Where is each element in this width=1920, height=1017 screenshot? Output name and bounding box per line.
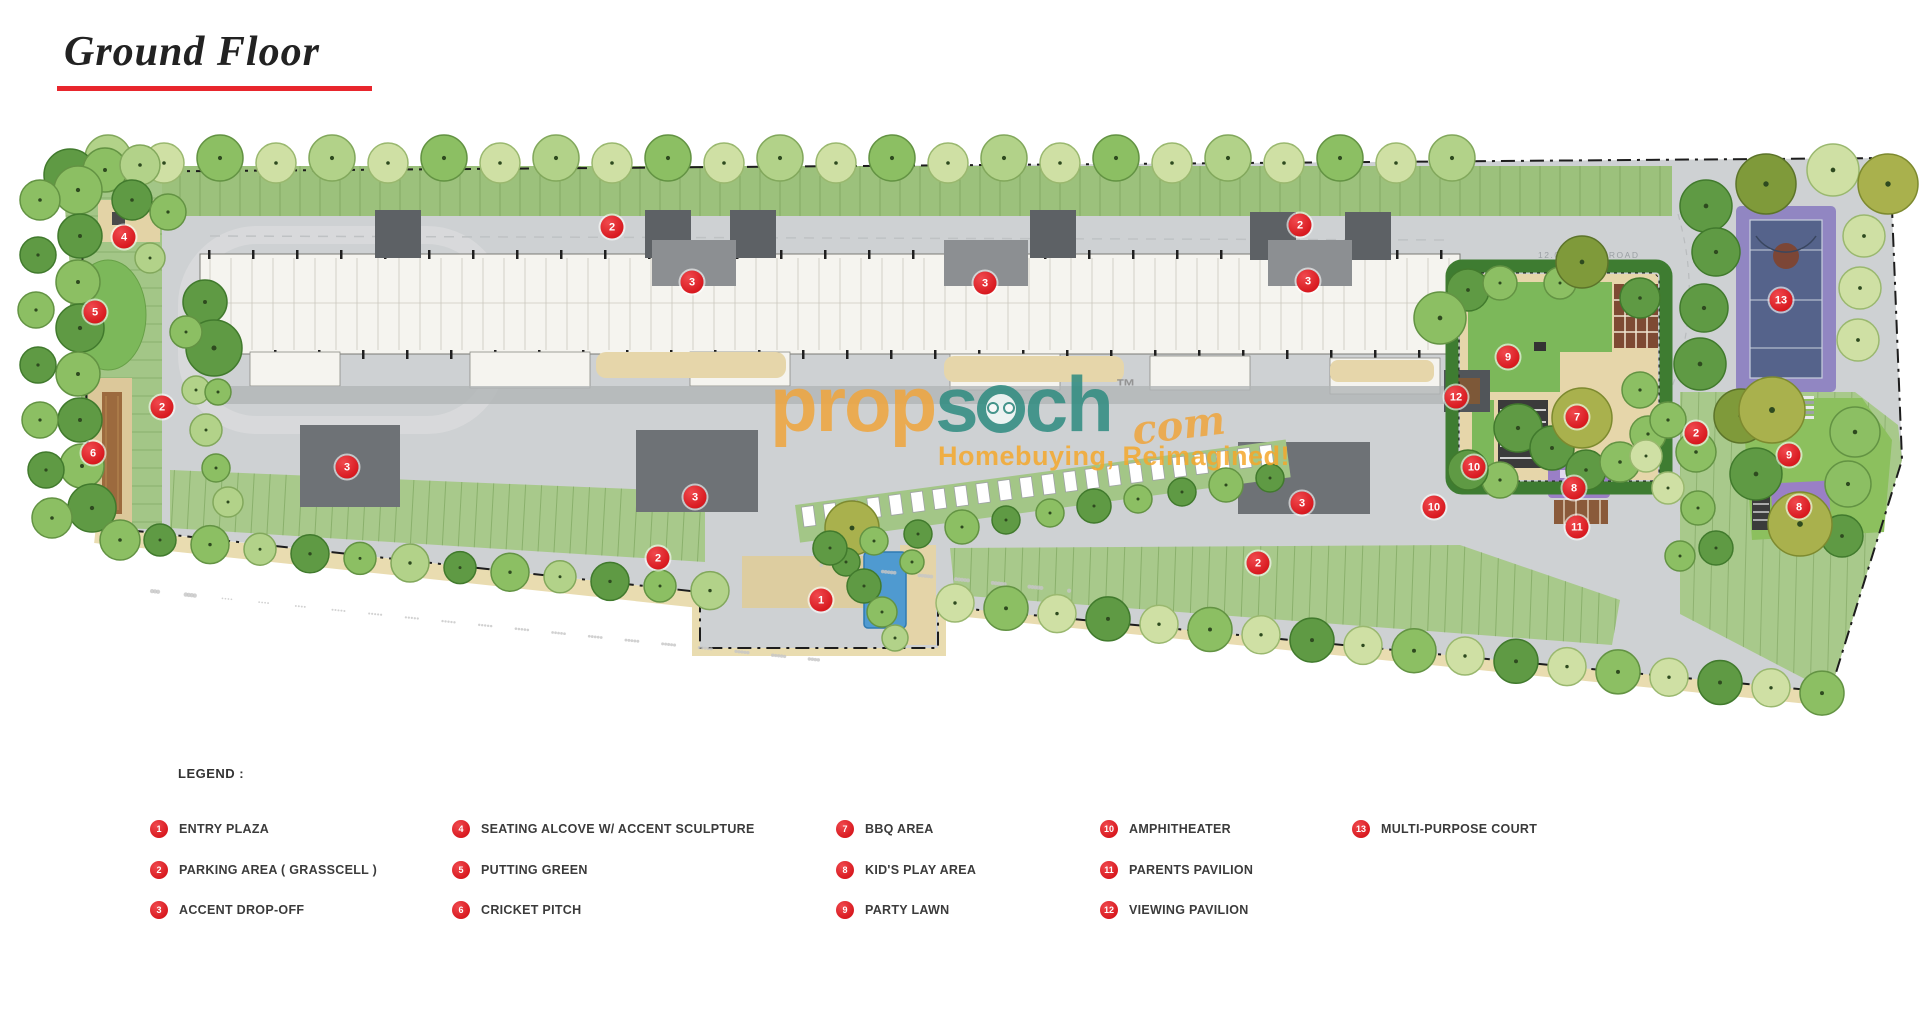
legend-label: KID'S PLAY AREA <box>865 863 976 877</box>
plan-marker-7: 7 <box>1566 406 1589 429</box>
legend-label: MULTI-PURPOSE COURT <box>1381 822 1537 836</box>
legend-label: ENTRY PLAZA <box>179 822 269 836</box>
plan-marker-13: 13 <box>1770 289 1793 312</box>
legend-item-7: 7BBQ AREA <box>836 820 934 838</box>
plan-marker-10: 10 <box>1423 496 1446 519</box>
legend-item-5: 5PUTTING GREEN <box>452 861 588 879</box>
plan-marker-11: 11 <box>1566 516 1589 539</box>
legend-label: SEATING ALCOVE W/ ACCENT SCULPTURE <box>481 822 755 836</box>
plan-marker-6: 6 <box>82 442 105 465</box>
plan-marker-2: 2 <box>151 396 174 419</box>
legend-badge: 1 <box>150 820 168 838</box>
ground-floor-plan-page: Ground Floor <box>0 0 1920 1017</box>
plan-marker-9: 9 <box>1778 444 1801 467</box>
legend-item-11: 11PARENTS PAVILION <box>1100 861 1253 879</box>
plan-marker-2: 2 <box>647 547 670 570</box>
legend-label: PUTTING GREEN <box>481 863 588 877</box>
plan-marker-3: 3 <box>684 486 707 509</box>
legend-badge: 11 <box>1100 861 1118 879</box>
legend-item-1: 1ENTRY PLAZA <box>150 820 269 838</box>
plan-marker-5: 5 <box>84 301 107 324</box>
plan-marker-2: 2 <box>601 216 624 239</box>
legend-label: PARKING AREA ( GRASSCELL ) <box>179 863 377 877</box>
legend-label: CRICKET PITCH <box>481 903 581 917</box>
plan-marker-9: 9 <box>1497 346 1520 369</box>
legend-item-6: 6CRICKET PITCH <box>452 901 581 919</box>
legend-label: VIEWING PAVILION <box>1129 903 1249 917</box>
legend-item-8: 8KID'S PLAY AREA <box>836 861 976 879</box>
legend-badge: 8 <box>836 861 854 879</box>
legend-badge: 10 <box>1100 820 1118 838</box>
legend-item-3: 3ACCENT DROP-OFF <box>150 901 304 919</box>
garden-table <box>1534 342 1546 351</box>
legend-badge: 13 <box>1352 820 1370 838</box>
legend-label: PARENTS PAVILION <box>1129 863 1253 877</box>
legend-label: PARTY LAWN <box>865 903 949 917</box>
legend-badge: 5 <box>452 861 470 879</box>
plan-marker-8: 8 <box>1788 496 1811 519</box>
basketball-key <box>1773 243 1799 269</box>
plan-marker-8: 8 <box>1563 477 1586 500</box>
plan-marker-3: 3 <box>681 271 704 294</box>
plan-marker-4: 4 <box>113 226 136 249</box>
plan-marker-3: 3 <box>1297 270 1320 293</box>
legend-item-9: 9PARTY LAWN <box>836 901 949 919</box>
legend-badge: 12 <box>1100 901 1118 919</box>
legend-item-13: 13MULTI-PURPOSE COURT <box>1352 820 1537 838</box>
plan-marker-3: 3 <box>1291 492 1314 515</box>
legend-item-4: 4SEATING ALCOVE W/ ACCENT SCULPTURE <box>452 820 755 838</box>
legend-label: ACCENT DROP-OFF <box>179 903 304 917</box>
plan-marker-2: 2 <box>1685 422 1708 445</box>
plan-marker-2: 2 <box>1289 214 1312 237</box>
legend-badge: 4 <box>452 820 470 838</box>
plan-marker-2: 2 <box>1247 552 1270 575</box>
legend-label: AMPHITHEATER <box>1129 822 1231 836</box>
plan-marker-10: 10 <box>1463 456 1486 479</box>
legend-badge: 6 <box>452 901 470 919</box>
legend-item-12: 12VIEWING PAVILION <box>1100 901 1249 919</box>
legend-badge: 7 <box>836 820 854 838</box>
legend-heading: LEGEND : <box>178 766 244 781</box>
plan-marker-1: 1 <box>810 589 833 612</box>
legend-badge: 2 <box>150 861 168 879</box>
plan-marker-3: 3 <box>336 456 359 479</box>
plan-marker-3: 3 <box>974 272 997 295</box>
legend-badge: 9 <box>836 901 854 919</box>
legend-badge: 3 <box>150 901 168 919</box>
legend-label: BBQ AREA <box>865 822 934 836</box>
legend-item-10: 10AMPHITHEATER <box>1100 820 1231 838</box>
plan-marker-12: 12 <box>1445 386 1468 409</box>
legend-item-2: 2PARKING AREA ( GRASSCELL ) <box>150 861 377 879</box>
